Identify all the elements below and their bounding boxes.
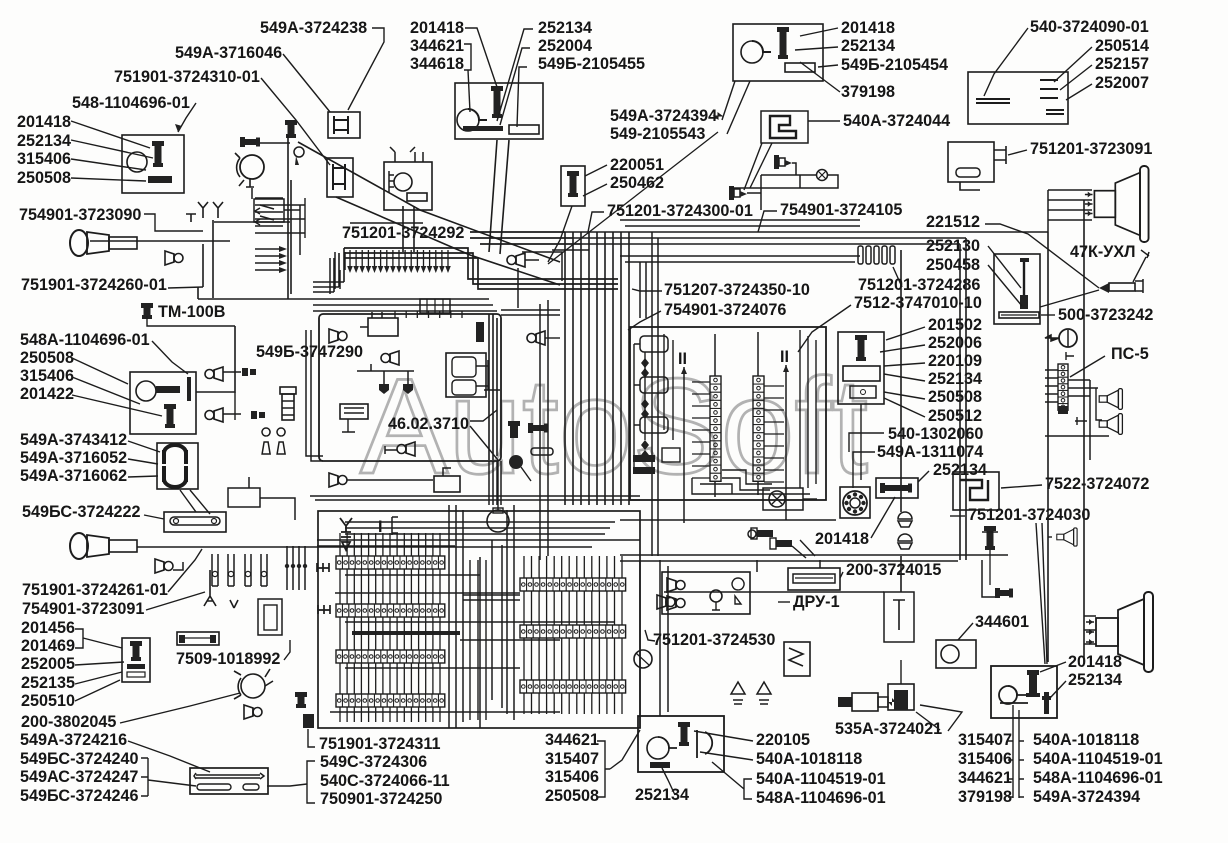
svg-text:751901-3724261-01: 751901-3724261-01 (22, 581, 168, 599)
svg-text:751201-3724030: 751201-3724030 (968, 506, 1090, 524)
svg-text:548А-1104696-01: 548А-1104696-01 (1033, 769, 1163, 787)
svg-text:200-3724015: 200-3724015 (846, 561, 941, 579)
svg-text:540А-1018118: 540А-1018118 (1033, 731, 1139, 749)
svg-text:221512: 221512 (926, 213, 980, 231)
svg-text:549-2105543: 549-2105543 (610, 125, 705, 143)
svg-text:315407: 315407 (958, 731, 1012, 749)
svg-text:344601: 344601 (975, 613, 1029, 631)
svg-text:252134: 252134 (538, 19, 592, 37)
svg-text:549Б-2105454: 549Б-2105454 (841, 56, 948, 74)
svg-text:200-3802045: 200-3802045 (21, 713, 116, 731)
svg-text:252135: 252135 (21, 674, 75, 692)
svg-text:540А-1018118: 540А-1018118 (756, 750, 862, 768)
svg-text:II: II (780, 348, 789, 366)
svg-text:344621: 344621 (410, 37, 464, 55)
svg-text:549АС-3724247: 549АС-3724247 (20, 768, 138, 786)
svg-text:250508: 250508 (928, 388, 982, 406)
svg-text:751901-3724310-01: 751901-3724310-01 (114, 68, 260, 86)
svg-text:540А-1104519-01: 540А-1104519-01 (1033, 750, 1163, 768)
svg-text:751207-3724350-10: 751207-3724350-10 (664, 281, 810, 299)
svg-text:540А-1104519-01: 540А-1104519-01 (756, 770, 886, 788)
svg-text:250462: 250462 (610, 174, 664, 192)
svg-text:ТМ-100В: ТМ-100В (158, 303, 225, 321)
svg-text:250458: 250458 (926, 256, 980, 274)
svg-text:549А-3724394: 549А-3724394 (1033, 788, 1140, 806)
svg-text:549А-3716046: 549А-3716046 (175, 44, 282, 62)
svg-text:315406: 315406 (17, 150, 71, 168)
svg-text:201502: 201502 (928, 316, 982, 334)
svg-text:252005: 252005 (21, 655, 75, 673)
svg-text:250510: 250510 (21, 692, 75, 710)
svg-text:540С-3724066-11: 540С-3724066-11 (320, 772, 450, 790)
svg-text:7509-1018992: 7509-1018992 (176, 650, 280, 668)
svg-text:250508: 250508 (20, 349, 74, 367)
svg-text:201418: 201418 (410, 19, 464, 37)
svg-text:379198: 379198 (958, 788, 1012, 806)
svg-text:201469: 201469 (21, 637, 75, 655)
svg-text:549А-3724238: 549А-3724238 (260, 19, 367, 37)
svg-text:500-3723242: 500-3723242 (1058, 306, 1153, 324)
svg-text:250512: 250512 (928, 407, 982, 425)
svg-text:315406: 315406 (545, 768, 599, 786)
svg-text:379198: 379198 (841, 83, 895, 101)
svg-text:754901-3723091: 754901-3723091 (22, 600, 144, 618)
svg-text:549А-1311074: 549А-1311074 (877, 443, 983, 461)
svg-text:201456: 201456 (21, 619, 75, 637)
svg-text:549А-3716052: 549А-3716052 (20, 449, 127, 467)
svg-text:252007: 252007 (1095, 74, 1149, 92)
svg-text:751201-3724300-01: 751201-3724300-01 (607, 202, 753, 220)
svg-text:540-1302060: 540-1302060 (888, 425, 983, 443)
svg-text:220051: 220051 (610, 156, 664, 174)
svg-text:750901-3724250: 750901-3724250 (320, 790, 442, 808)
svg-text:252004: 252004 (538, 37, 592, 55)
svg-text:252134: 252134 (928, 370, 982, 388)
svg-text:201418: 201418 (841, 19, 895, 37)
svg-text:201418: 201418 (1068, 653, 1122, 671)
svg-text:549А-3724216: 549А-3724216 (20, 731, 127, 749)
svg-text:549БС-3724222: 549БС-3724222 (22, 503, 141, 521)
svg-text:549С-3724306: 549С-3724306 (320, 753, 427, 771)
svg-text:540-3724090-01: 540-3724090-01 (1030, 18, 1149, 36)
svg-text:549А-3743412: 549А-3743412 (20, 431, 127, 449)
svg-text:250508: 250508 (17, 169, 71, 187)
svg-text:549БС-3724246: 549БС-3724246 (20, 787, 139, 805)
svg-text:7522-3724072: 7522-3724072 (1045, 475, 1149, 493)
svg-text:252006: 252006 (928, 334, 982, 352)
svg-text:252134: 252134 (841, 37, 895, 55)
svg-text:754901-3724105: 754901-3724105 (780, 201, 902, 219)
svg-text:549БС-3724240: 549БС-3724240 (20, 750, 139, 768)
svg-text:315406: 315406 (958, 750, 1012, 768)
svg-text:201422: 201422 (20, 385, 74, 403)
svg-text:754901-3724076: 754901-3724076 (664, 301, 786, 319)
svg-text:220105: 220105 (756, 731, 810, 749)
svg-text:751901-3724260-01: 751901-3724260-01 (21, 276, 167, 294)
svg-text:201418: 201418 (815, 530, 869, 548)
svg-text:250508: 250508 (545, 787, 599, 805)
svg-text:201418: 201418 (17, 113, 71, 131)
svg-text:II: II (678, 350, 687, 368)
svg-text:315407: 315407 (545, 750, 599, 768)
svg-text:46.02.3710: 46.02.3710 (388, 415, 469, 433)
svg-text:250514: 250514 (1095, 37, 1149, 55)
svg-text:751901-3724311: 751901-3724311 (319, 735, 441, 753)
svg-text:7512-3747010-10: 7512-3747010-10 (854, 294, 982, 312)
svg-text:47К-УХЛ: 47К-УХЛ (1070, 243, 1136, 261)
svg-text:549А-3716062: 549А-3716062 (20, 467, 127, 485)
svg-text:344621: 344621 (958, 769, 1012, 787)
svg-text:549А-3724394: 549А-3724394 (610, 107, 717, 125)
svg-text:220109: 220109 (928, 352, 982, 370)
svg-text:344618: 344618 (410, 55, 464, 73)
svg-text:751201-3723091: 751201-3723091 (1030, 140, 1152, 158)
svg-text:548-1104696-01: 548-1104696-01 (72, 94, 190, 112)
svg-text:751201-3724530: 751201-3724530 (653, 631, 775, 649)
svg-text:252157: 252157 (1095, 55, 1149, 73)
svg-text:548А-1104696-01: 548А-1104696-01 (756, 789, 886, 807)
svg-text:ДРУ-1: ДРУ-1 (793, 593, 840, 611)
svg-text:252134: 252134 (635, 786, 689, 804)
svg-text:548А-1104696-01: 548А-1104696-01 (20, 331, 150, 349)
svg-text:754901-3723090: 754901-3723090 (19, 206, 141, 224)
svg-text:344621: 344621 (545, 731, 599, 749)
svg-text:535А-3724021: 535А-3724021 (835, 720, 942, 738)
svg-text:540А-3724044: 540А-3724044 (843, 112, 950, 130)
svg-text:252134: 252134 (17, 132, 71, 150)
svg-text:549Б-2105455: 549Б-2105455 (538, 55, 645, 73)
svg-text:549Б-3747290: 549Б-3747290 (256, 343, 363, 361)
svg-text:315406: 315406 (20, 367, 74, 385)
svg-text:ПС-5: ПС-5 (1111, 345, 1149, 363)
svg-text:252130: 252130 (926, 237, 980, 255)
svg-text:252134: 252134 (1068, 671, 1122, 689)
svg-text:751201-3724286: 751201-3724286 (858, 276, 980, 294)
